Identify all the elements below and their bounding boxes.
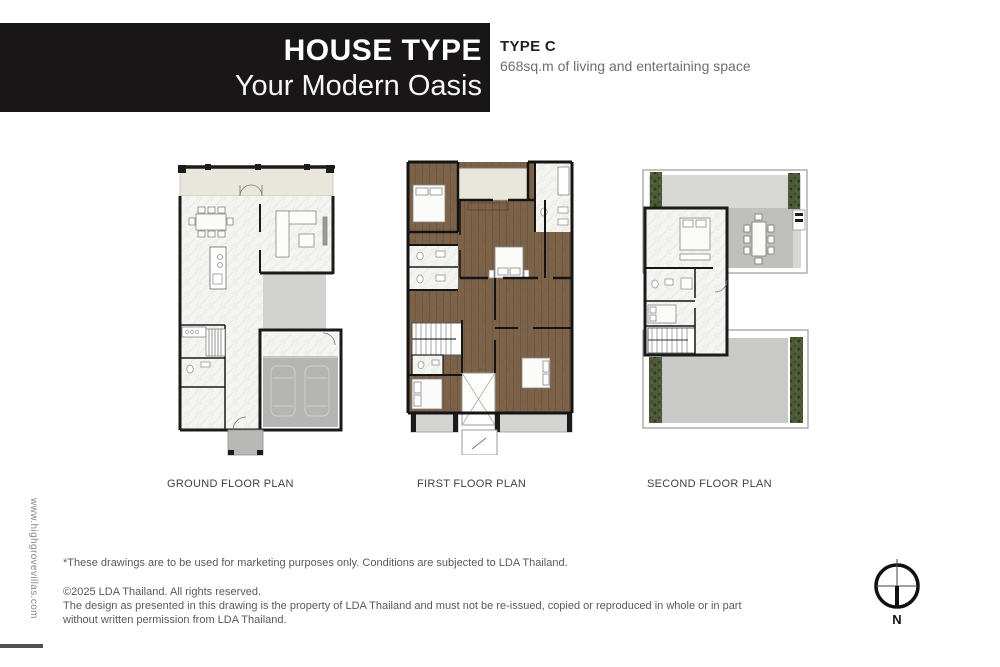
disclaimer-text: *These drawings are to be used for marke… [63, 557, 568, 569]
type-description: 668sq.m of living and entertaining space [500, 58, 751, 74]
page-subtitle: Your Modern Oasis [235, 69, 482, 103]
footer-accent-bar [0, 644, 43, 648]
kitchen-counter [182, 327, 206, 337]
bed-master [489, 247, 529, 278]
bed-small-roof-room [648, 305, 676, 323]
compass: N [868, 552, 928, 635]
type-label: TYPE C [500, 38, 751, 55]
website-url: www.highgrovevillas.com [28, 498, 39, 640]
hall-bathroom [412, 355, 443, 375]
stairs [206, 329, 225, 356]
north-compass-icon: N [868, 552, 928, 630]
courtyard [263, 273, 326, 330]
label-first-floor: FIRST FLOOR PLAN [417, 478, 526, 490]
bed-roof-bedroom [680, 218, 710, 260]
first-floor-plan [398, 155, 593, 460]
void-shaft [462, 373, 495, 425]
bed-rear-left-bedroom [412, 379, 442, 409]
terrace [178, 164, 335, 196]
copyright-line-1: ©2025 LDA Thailand. All rights reserved. [63, 585, 742, 599]
label-second-floor: SECOND FLOOR PLAN [647, 478, 772, 490]
garage [260, 330, 341, 430]
stairs [648, 328, 695, 353]
bed-front-bedroom [413, 185, 445, 222]
copyright-line-2: The design as presented in this drawing … [63, 599, 742, 613]
ground-floor-plan [163, 162, 348, 465]
second-floor-plan [633, 168, 813, 438]
type-info: TYPE C 668sq.m of living and entertainin… [500, 38, 751, 74]
master-bathroom [535, 162, 572, 232]
label-ground-floor: GROUND FLOOR PLAN [167, 478, 294, 490]
penthouse-room [645, 208, 727, 355]
porch-canopy [462, 430, 497, 455]
upper-terrace [458, 168, 528, 200]
bed-rear-right-bedroom [522, 358, 550, 388]
compass-north-label: N [892, 612, 901, 627]
page-title: HOUSE TYPE [284, 33, 482, 69]
second-floor-drawing [633, 168, 813, 433]
header-banner: HOUSE TYPE Your Modern Oasis [0, 23, 490, 112]
kitchen-island [210, 247, 226, 289]
copyright-block: ©2025 LDA Thailand. All rights reserved.… [63, 585, 742, 627]
copyright-line-3: without written permission from LDA Thai… [63, 613, 742, 627]
first-floor-drawing [398, 155, 593, 455]
ground-floor-drawing [163, 162, 348, 460]
brochure-page: HOUSE TYPE Your Modern Oasis TYPE C 668s… [0, 0, 1000, 667]
left-bathrooms [408, 245, 458, 290]
stairs [412, 323, 462, 355]
